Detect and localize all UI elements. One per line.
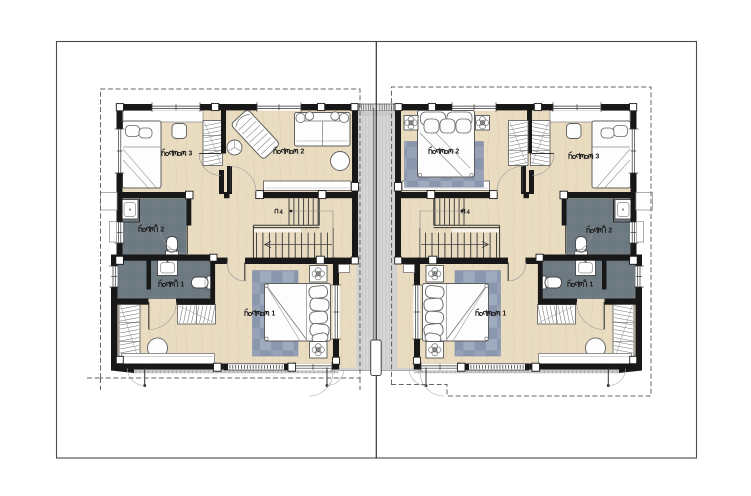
- svg-text:3: 3: [595, 154, 599, 161]
- svg-text:1: 1: [502, 311, 506, 318]
- svg-text:1: 1: [180, 282, 184, 289]
- svg-text:2: 2: [608, 228, 612, 235]
- svg-text:2: 2: [300, 149, 304, 156]
- svg-text:2: 2: [455, 149, 459, 156]
- svg-text:2: 2: [160, 227, 164, 234]
- svg-text:1: 1: [271, 311, 275, 318]
- svg-text:1: 1: [589, 282, 593, 289]
- svg-text:3: 3: [188, 151, 192, 158]
